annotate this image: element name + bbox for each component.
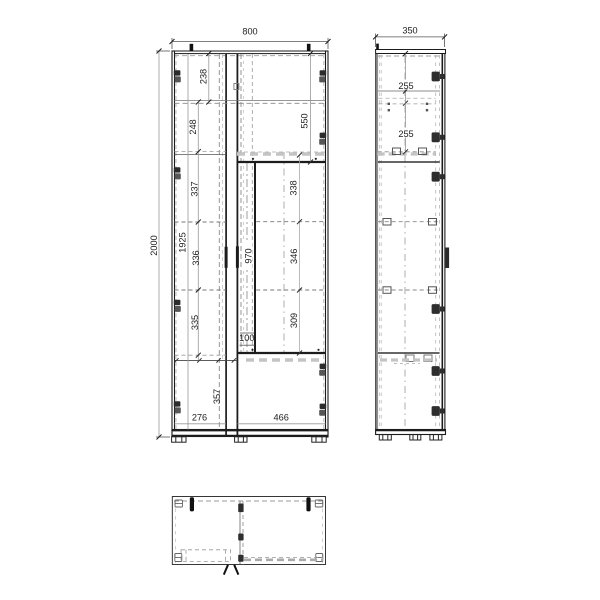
svg-text:255: 255 bbox=[398, 129, 413, 139]
svg-text:338: 338 bbox=[289, 180, 299, 195]
svg-text:309: 309 bbox=[289, 313, 299, 328]
svg-text:1925: 1925 bbox=[177, 232, 187, 252]
svg-text:970: 970 bbox=[243, 248, 253, 263]
svg-text:100: 100 bbox=[239, 333, 254, 343]
svg-text:248: 248 bbox=[188, 119, 198, 134]
svg-text:276: 276 bbox=[192, 412, 207, 422]
svg-text:2000: 2000 bbox=[149, 235, 159, 255]
svg-text:550: 550 bbox=[300, 113, 310, 128]
svg-text:238: 238 bbox=[198, 69, 208, 84]
svg-text:350: 350 bbox=[402, 26, 417, 36]
svg-text:255: 255 bbox=[398, 81, 413, 91]
svg-text:336: 336 bbox=[191, 250, 201, 265]
svg-text:466: 466 bbox=[274, 412, 289, 422]
svg-text:335: 335 bbox=[190, 315, 200, 330]
svg-text:337: 337 bbox=[190, 181, 200, 196]
svg-text:346: 346 bbox=[289, 249, 299, 264]
svg-text:800: 800 bbox=[242, 27, 257, 37]
svg-text:357: 357 bbox=[212, 389, 222, 404]
